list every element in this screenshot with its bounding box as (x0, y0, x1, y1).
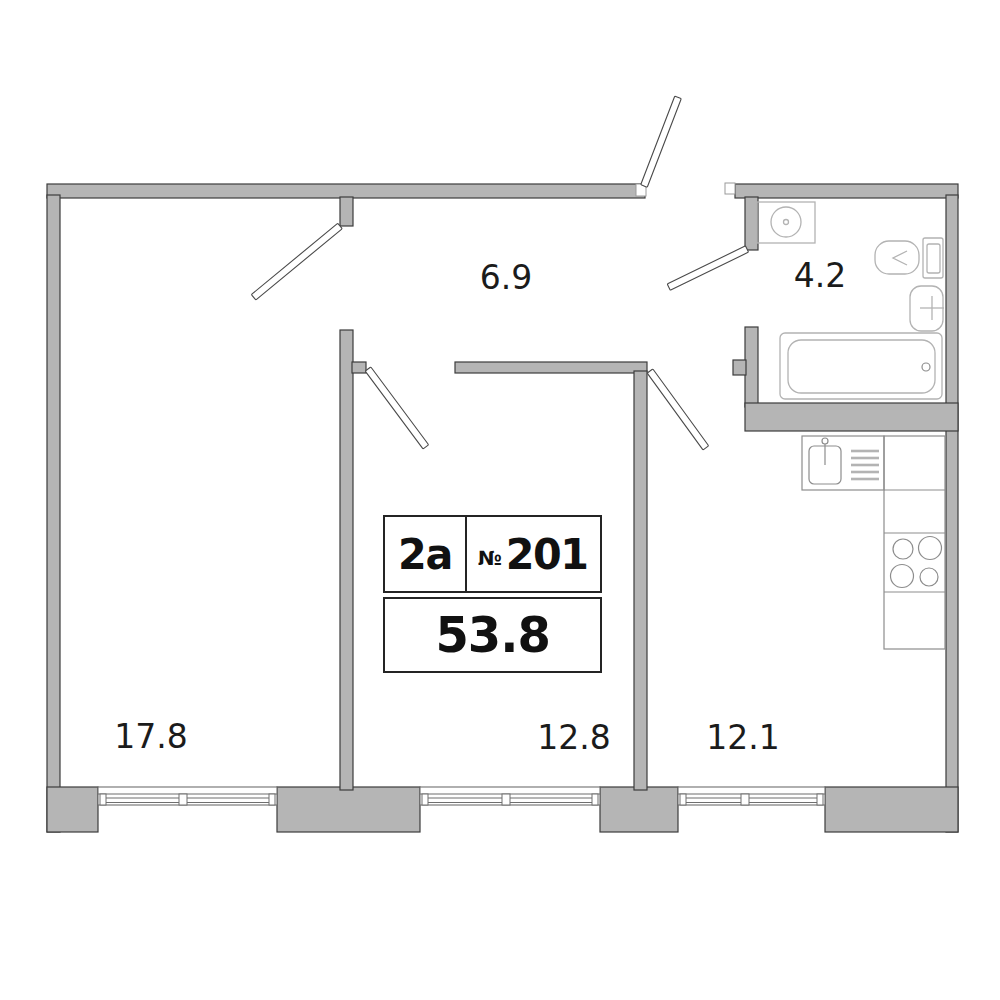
wall-right (946, 195, 958, 832)
bathroom-door-leaf (667, 246, 748, 290)
bathroom-sink-icon (910, 286, 944, 331)
floor-plan-drawing (0, 0, 1000, 1000)
stove-icon (891, 537, 942, 588)
bedroom-door-leaf (365, 367, 428, 449)
bathtub-icon (780, 333, 942, 399)
unit-label-top-row: 2a № 201 (383, 515, 602, 593)
wall-bathroom-left-bottom (745, 327, 758, 407)
unit-label-box: 2a № 201 53.8 (383, 515, 602, 673)
unit-type-cell: 2a (385, 517, 467, 591)
bedroom-area-label: 12.8 (537, 718, 610, 757)
windows (98, 787, 825, 805)
kitchen-counter-icon (884, 436, 945, 649)
floor-plan: 17.8 6.9 12.8 12.1 4.2 2a № 201 53.8 (0, 0, 1000, 1000)
washing-machine-icon (757, 202, 815, 243)
wall-bathroom-left-top (745, 197, 758, 250)
bathroom-area-label: 4.2 (794, 256, 846, 295)
unit-total-area: 53.8 (435, 606, 550, 664)
wall-top-left (47, 184, 645, 198)
wall-pier-bottom-right (825, 787, 958, 832)
bathroom-door-stop (725, 183, 735, 194)
kitchen-fixtures (802, 436, 945, 649)
wall-living-stub-top (340, 197, 353, 226)
wall-bedroom-top (455, 362, 647, 373)
unit-type-label: 2a (398, 529, 452, 579)
living-room-door-leaf (251, 223, 342, 300)
wall-pier-bottom-mid-left (277, 787, 420, 832)
entrance-door-leaf (641, 96, 682, 187)
wall-bedroom-right (634, 371, 647, 790)
unit-number: 201 (506, 529, 588, 579)
unit-number-cell: № 201 (467, 517, 600, 591)
window-living-room (98, 787, 277, 805)
wall-pier-bottom-mid-right (600, 787, 678, 832)
hall-area-label: 6.9 (480, 258, 532, 297)
kitchen-door-leaf (647, 369, 709, 450)
wall-left (47, 195, 60, 832)
wall-bathroom-bottom (745, 403, 958, 431)
bathroom-fixtures (757, 202, 944, 399)
window-kitchen (678, 787, 825, 805)
wall-bathroom-stub (733, 360, 746, 375)
window-bedroom (420, 787, 600, 805)
toilet-icon (875, 238, 943, 278)
unit-number-sign: № (478, 546, 502, 570)
unit-total-area-row: 53.8 (383, 597, 602, 673)
wall-top-right (735, 184, 958, 198)
wall-living-main (340, 330, 353, 790)
wall-bedroom-door-stop (352, 362, 366, 373)
kitchen-area-label: 12.1 (706, 718, 779, 757)
living-room-area-label: 17.8 (114, 717, 187, 756)
wall-pier-bottom-left (47, 787, 98, 832)
kitchen-sink-icon (802, 436, 884, 490)
